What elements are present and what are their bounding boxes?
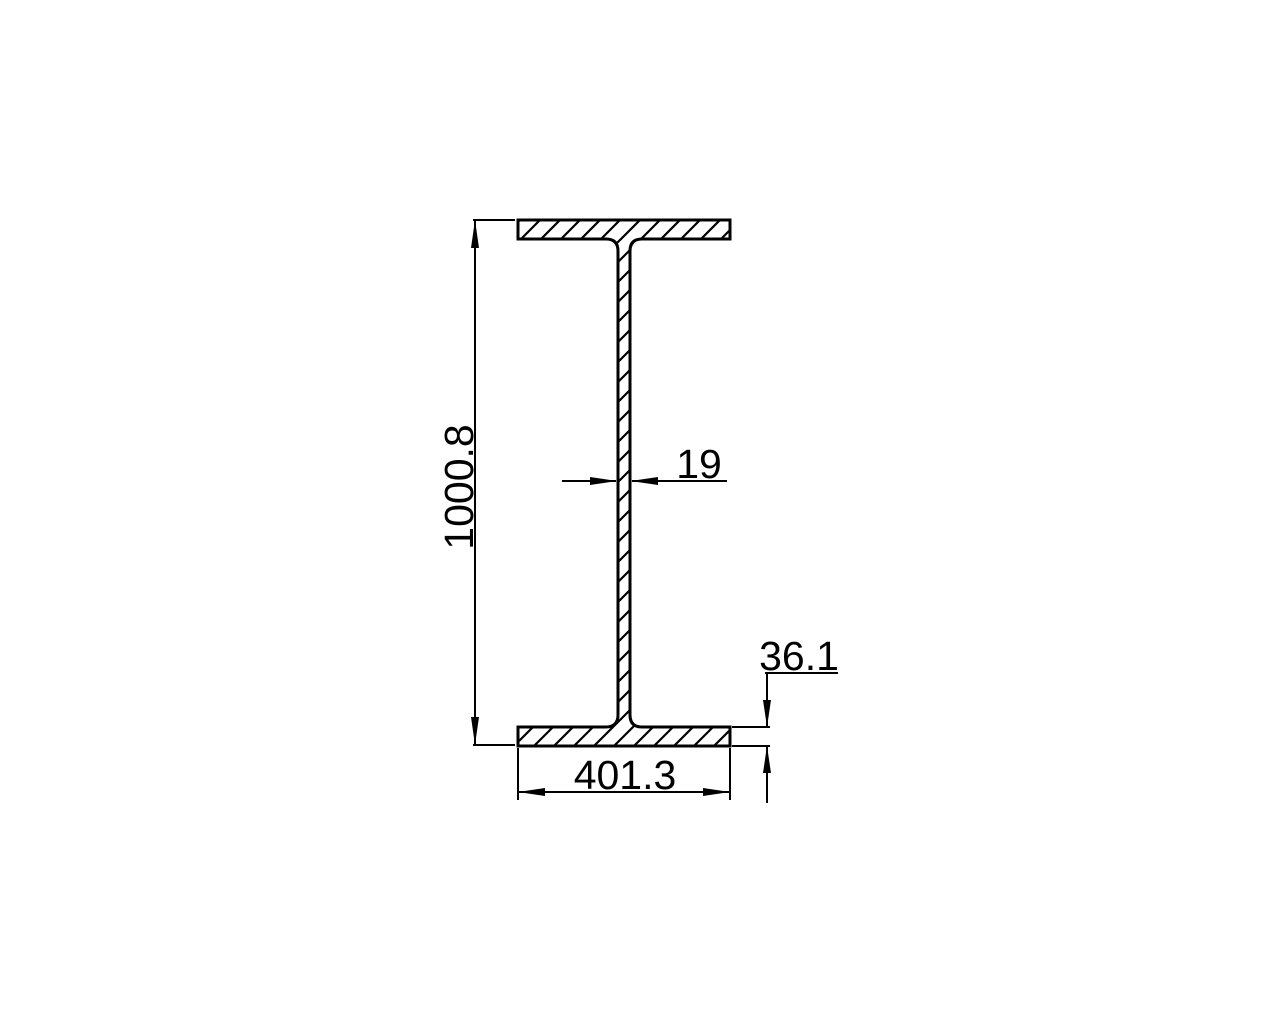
height-dimension-label: 1000.8 — [436, 424, 482, 549]
arrowhead-up — [471, 220, 479, 248]
dimension-overall-height: 1000.8 — [436, 220, 515, 745]
web-thickness-label: 19 — [676, 441, 722, 487]
arrowhead-left — [631, 477, 658, 485]
flange-thickness-label: 36.1 — [759, 633, 839, 679]
arrowhead-right — [590, 477, 617, 485]
dimension-web-thickness: 19 — [562, 441, 727, 487]
dimension-flange-thickness: 36.1 — [732, 633, 839, 803]
arrowhead-left — [518, 788, 545, 796]
arrowhead-down — [471, 717, 479, 745]
arrowhead-down — [763, 700, 771, 727]
drawing-canvas: 1000.8 19 36.1 401.3 — [0, 0, 1280, 1024]
arrowhead-up — [763, 746, 771, 773]
flange-width-label: 401.3 — [574, 752, 677, 798]
arrowhead-right — [703, 788, 730, 796]
dimension-flange-width: 401.3 — [518, 748, 730, 800]
ibeam-section-drawing: 1000.8 19 36.1 401.3 — [0, 0, 1280, 1024]
